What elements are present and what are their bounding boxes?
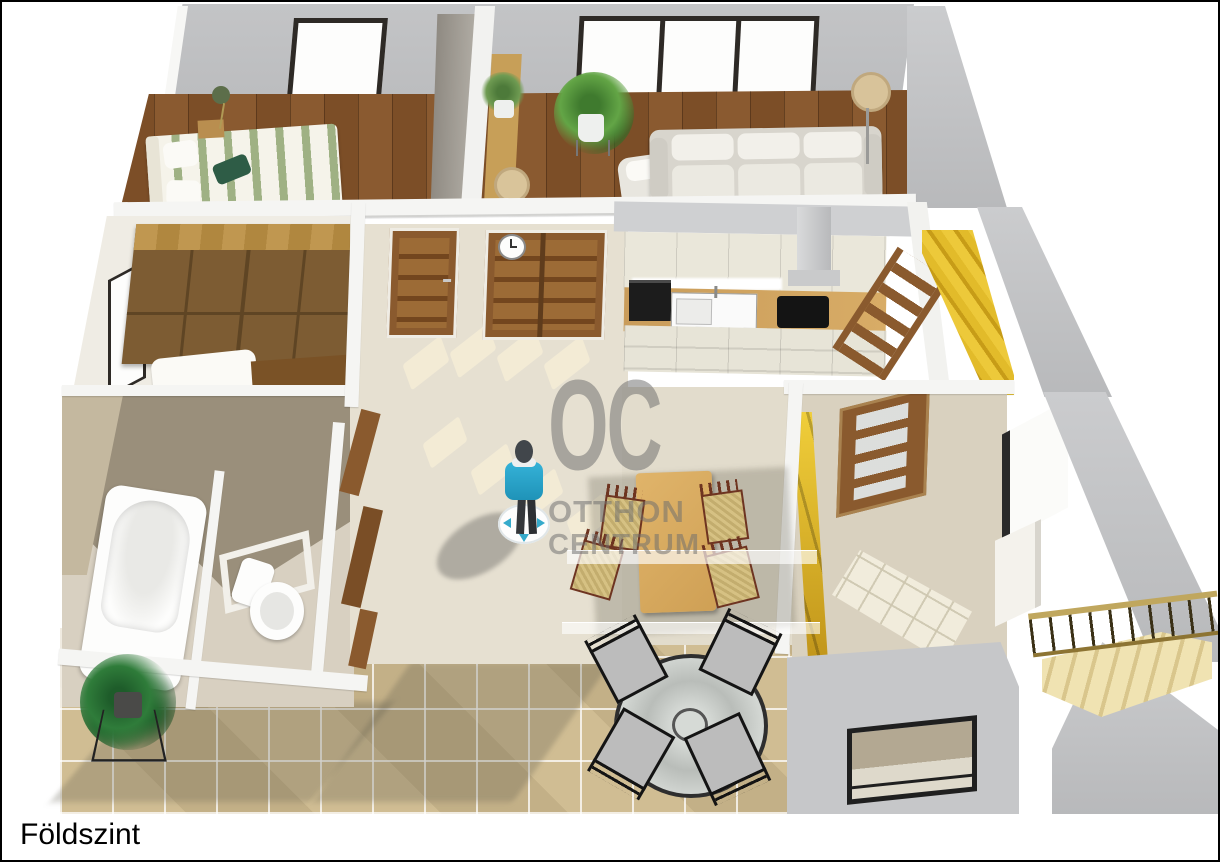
avatar-person-head xyxy=(515,440,533,463)
clock-hand xyxy=(510,246,517,248)
single-door xyxy=(386,228,460,338)
watermark-line2: CENTRUM xyxy=(548,531,708,560)
wood-wardrobes xyxy=(122,224,363,364)
floor-lamp-pole xyxy=(866,108,869,164)
front-window xyxy=(847,715,977,805)
sink-basin xyxy=(676,298,712,325)
bathtub-basin xyxy=(98,495,195,636)
living-plant-pot xyxy=(578,114,604,142)
floorplan-image: OC OTTHON CENTRUM Földszint xyxy=(0,0,1220,862)
oven xyxy=(629,280,671,321)
green-cushion xyxy=(211,153,252,186)
outer-wall-right-top xyxy=(907,6,1007,208)
arrow-down-icon xyxy=(519,534,529,542)
wardrobe-top-face xyxy=(134,224,363,250)
floor-label: Földszint xyxy=(20,818,140,852)
wardrobe-divider xyxy=(178,250,193,364)
arrow-left-icon xyxy=(503,518,511,528)
toilet-seat xyxy=(260,592,294,630)
toilet-bowl xyxy=(250,582,304,640)
wall-lamp xyxy=(212,86,230,104)
wardrobe-divider xyxy=(235,250,251,364)
cooktop xyxy=(777,296,829,328)
door-handle xyxy=(443,279,451,282)
watermark: OC OTTHON CENTRUM xyxy=(548,362,708,560)
sofa-back-cushion xyxy=(803,131,861,158)
pillow xyxy=(162,139,199,169)
stairhall-top-cap xyxy=(784,380,1014,394)
wall-clock xyxy=(498,234,526,260)
sofa-back-cushion xyxy=(671,134,733,161)
sofa-back-cushion xyxy=(737,132,799,159)
range-hood-canopy xyxy=(788,270,840,286)
front-window-bar xyxy=(852,774,972,790)
plant-wire-stand xyxy=(91,710,167,762)
watermark-line1: OTTHON xyxy=(548,496,708,527)
sofa-armrest xyxy=(649,138,668,200)
floor-lamp xyxy=(851,72,891,112)
faucet xyxy=(714,286,717,298)
door-panels xyxy=(396,238,449,328)
dining-chair xyxy=(701,489,750,544)
bath-top-cap xyxy=(62,385,356,396)
kitchen-sink xyxy=(671,292,758,329)
watermark-monogram: OC xyxy=(548,362,673,490)
glass-panes xyxy=(854,403,909,501)
wardrobe-divider xyxy=(291,250,306,364)
plant-stand xyxy=(576,140,610,156)
arrow-right-icon xyxy=(537,518,545,528)
console-plant-pot xyxy=(494,100,514,118)
wardrobe-rail xyxy=(127,312,353,315)
avatar-person-torso xyxy=(505,462,543,500)
range-hood-duct xyxy=(797,207,831,275)
